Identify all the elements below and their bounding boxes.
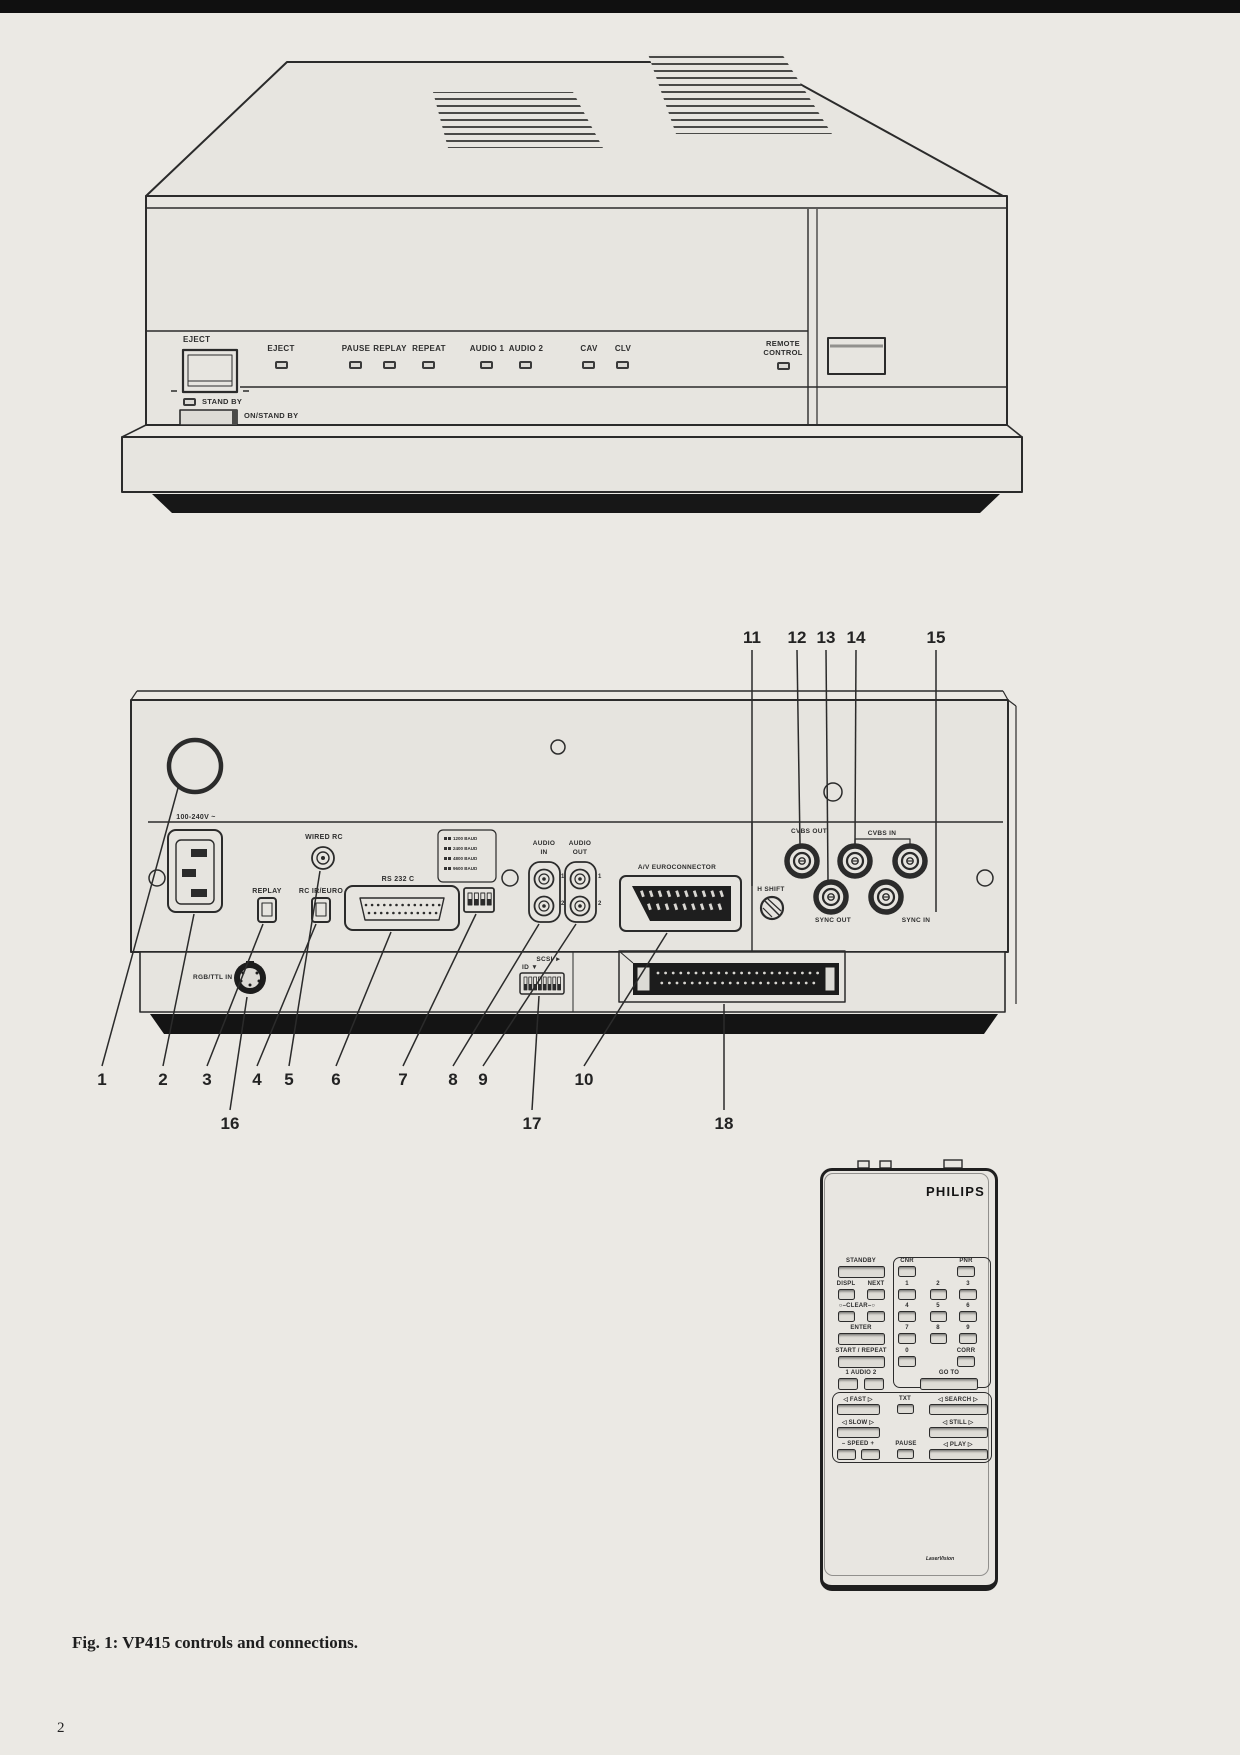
remote-digit-4-label: 4 <box>905 1303 909 1309</box>
remote-search-label: ◁ SEARCH ▷ <box>938 1396 978 1403</box>
remote-goto-button <box>920 1378 978 1390</box>
remote-audio-label: 1 AUDIO 2 <box>846 1370 877 1376</box>
remote-slow-button <box>837 1427 880 1438</box>
audio2-indicator <box>519 361 532 369</box>
baud-legend-row: 4800 BAUD <box>444 856 477 861</box>
dip-icon <box>444 847 447 850</box>
indicator-label-pause: PAUSE <box>342 344 370 353</box>
remote-digit-7-label: 7 <box>905 1325 909 1331</box>
callout-17: 17 <box>523 1114 542 1134</box>
baud-legend-row: 9600 BAUD <box>444 866 477 871</box>
remote-clear-left-button <box>838 1311 855 1322</box>
remote-digit-2-label: 2 <box>936 1281 940 1287</box>
line-art <box>0 0 1240 1755</box>
remote-standby-button <box>838 1266 885 1278</box>
baud-legend-row: 1200 BAUD <box>444 836 477 841</box>
callout-2: 2 <box>158 1070 167 1090</box>
indicator-label-cav: CAV <box>580 344 597 353</box>
remote-digit-8-label: 8 <box>936 1325 940 1331</box>
remote-digit-1-button <box>898 1289 916 1300</box>
standby-label: STAND BY <box>202 397 242 406</box>
remote-digit-9-label: 9 <box>966 1325 970 1331</box>
callout-3: 3 <box>202 1070 211 1090</box>
standby-indicator <box>183 398 196 406</box>
indicator-label-repeat: REPEAT <box>412 344 446 353</box>
callout-7: 7 <box>398 1070 407 1090</box>
callout-14: 14 <box>847 628 866 648</box>
remote-pnr-label: PNR <box>959 1258 972 1264</box>
remote-pause-button <box>897 1449 914 1459</box>
page-number: 2 <box>57 1720 65 1737</box>
remote-digit-2-button <box>930 1289 947 1300</box>
remote-displ-button <box>838 1289 855 1300</box>
remote-fast-button <box>837 1404 880 1415</box>
callout-8: 8 <box>448 1070 457 1090</box>
eject-indicator <box>275 361 288 369</box>
indicator-label-remote-control: REMOTE CONTROL <box>758 340 808 357</box>
replay-indicator <box>383 361 396 369</box>
callout-11: 11 <box>743 628 761 648</box>
remote-fast-label: ◁ FAST ▷ <box>843 1396 873 1403</box>
vent-grille-center <box>433 92 603 148</box>
remote-enter-label: ENTER <box>850 1325 871 1331</box>
callout-15: 15 <box>927 628 946 648</box>
baud-legend-row: 2400 BAUD <box>444 846 477 851</box>
rs232c-label: RS 232 C <box>382 876 415 883</box>
dip-icon <box>444 867 447 870</box>
on-standby-label: ON/STAND BY <box>244 411 298 420</box>
power-label: 100-240V ~ <box>176 814 215 821</box>
remote-digit-7-button <box>898 1333 916 1344</box>
remote-cnr-label: CNR <box>900 1258 914 1264</box>
remote-clear-label: ○–CLEAR–○ <box>839 1303 875 1309</box>
remote-digit-4-button <box>898 1311 916 1322</box>
remote-txt-button <box>897 1404 914 1414</box>
remote-still-label: ◁ STILL ▷ <box>943 1419 974 1426</box>
rear-view-drawing <box>131 691 1016 1034</box>
audio-in-jack1-label: 1 <box>561 874 565 880</box>
front-shadow <box>152 494 1000 513</box>
vent-grille-right <box>648 54 832 134</box>
remote-clear-right-button <box>867 1311 885 1322</box>
remote-digit-5-label: 5 <box>936 1303 940 1309</box>
remote-digit-8-button <box>930 1333 947 1344</box>
callout-13: 13 <box>817 628 836 648</box>
scsi-label: SCSI ► <box>536 956 561 963</box>
remote-audio-2-button <box>864 1378 884 1390</box>
on-standby-button <box>180 410 237 425</box>
wired-rc-label: WIRED RC <box>305 834 343 841</box>
audio-in-jack2-label: 2 <box>561 901 565 907</box>
cav-indicator <box>582 361 595 369</box>
remote-digit-3-button <box>959 1289 977 1300</box>
audio1-indicator <box>480 361 493 369</box>
callout-1: 1 <box>97 1070 106 1090</box>
sync-in-label: SYNC IN <box>902 917 930 924</box>
remote-play-button <box>929 1449 988 1460</box>
remote-play-label: ◁ PLAY ▷ <box>943 1441 973 1448</box>
remote-corr-button <box>957 1356 975 1367</box>
indicator-label-audio1: AUDIO 1 <box>470 344 505 353</box>
remote-digit-3-label: 3 <box>966 1281 970 1287</box>
remote-displ-label: DISPL <box>837 1281 856 1287</box>
remote-digit-0-button <box>898 1356 916 1367</box>
repeat-indicator <box>422 361 435 369</box>
remote-cnr-button <box>898 1266 916 1277</box>
figure-caption: Fig. 1: VP415 controls and connections. <box>72 1633 358 1653</box>
remote-speed-plus-button <box>861 1449 880 1460</box>
dip-icon <box>444 837 447 840</box>
remote-next-label: NEXT <box>868 1281 885 1287</box>
callout-18: 18 <box>715 1114 734 1134</box>
remote-speed-minus-button <box>837 1449 856 1460</box>
h-shift-label: H SHIFT <box>757 886 784 893</box>
remote-pnr-button <box>957 1266 975 1277</box>
remote-digit-1-label: 1 <box>905 1281 909 1287</box>
indicator-label-audio2: AUDIO 2 <box>509 344 544 353</box>
remote-standby-label: STANDBY <box>846 1258 876 1264</box>
indicator-label-clv: CLV <box>615 344 631 353</box>
remote-control-indicator <box>777 362 790 370</box>
remote-enter-button <box>838 1333 885 1345</box>
callout-12: 12 <box>788 628 807 648</box>
callout-5: 5 <box>284 1070 293 1090</box>
scsi-id-label: ID ▼ <box>522 964 538 971</box>
remote-digit-5-button <box>930 1311 947 1322</box>
audio-out-jack2-label: 2 <box>598 901 602 907</box>
remote-start-repeat-button <box>838 1356 885 1368</box>
remote-next-button <box>867 1289 885 1300</box>
philips-wordmark: PHILIPS <box>926 1184 985 1199</box>
indicator-label-eject: EJECT <box>267 344 294 353</box>
clv-indicator <box>616 361 629 369</box>
replay-switch-label: REPLAY <box>252 888 282 895</box>
remote-digit-6-button <box>959 1311 977 1322</box>
remote-still-button <box>929 1427 988 1438</box>
remote-goto-label: GO TO <box>939 1370 959 1376</box>
remote-speed-label: – SPEED + <box>842 1441 874 1447</box>
indicator-label-replay: REPLAY <box>373 344 407 353</box>
sync-out-label: SYNC OUT <box>815 917 851 924</box>
audio-out-label: AUDIO <box>569 840 591 847</box>
pause-indicator <box>349 361 362 369</box>
audio-out-label2: OUT <box>573 849 588 856</box>
remote-pause-label: PAUSE <box>895 1441 916 1447</box>
remote-corr-label: CORR <box>957 1348 975 1354</box>
dip-icon <box>444 857 447 860</box>
remote-digit-9-button <box>959 1333 977 1344</box>
callout-9: 9 <box>478 1070 487 1090</box>
remote-txt-label: TXT <box>899 1396 911 1402</box>
remote-digit-0-label: 0 <box>905 1348 909 1354</box>
front-view-drawing <box>122 54 1022 513</box>
laservision-label: LaserVision <box>926 1556 954 1562</box>
audio-out-jack1-label: 1 <box>598 874 602 880</box>
cvbs-out-label: CVBS OUT <box>791 828 827 835</box>
remote-slow-label: ◁ SLOW ▷ <box>842 1419 874 1426</box>
remote-search-button <box>929 1404 988 1415</box>
callout-10: 10 <box>575 1070 594 1090</box>
callout-6: 6 <box>331 1070 340 1090</box>
rgb-ttl-in-label: RGB/TTL IN <box>193 974 232 981</box>
remote-digit-6-label: 6 <box>966 1303 970 1309</box>
rc-ir-euro-label: RC IR/EURO <box>299 888 343 895</box>
manual-page: EJECT EJECT PAUSE REPLAY REPEAT AUDIO 1 … <box>0 0 1240 1755</box>
remote-start-repeat-label: START / REPEAT <box>835 1348 886 1354</box>
cvbs-in-label: CVBS IN <box>868 830 896 837</box>
eject-button-label: EJECT <box>183 335 210 344</box>
audio-in-label2: IN <box>540 849 547 856</box>
remote-audio-1-button <box>838 1378 858 1390</box>
callout-16: 16 <box>221 1114 240 1134</box>
callout-4: 4 <box>252 1070 261 1090</box>
audio-in-label: AUDIO <box>533 840 555 847</box>
euroconnector-label: A/V EUROCONNECTOR <box>638 864 716 871</box>
